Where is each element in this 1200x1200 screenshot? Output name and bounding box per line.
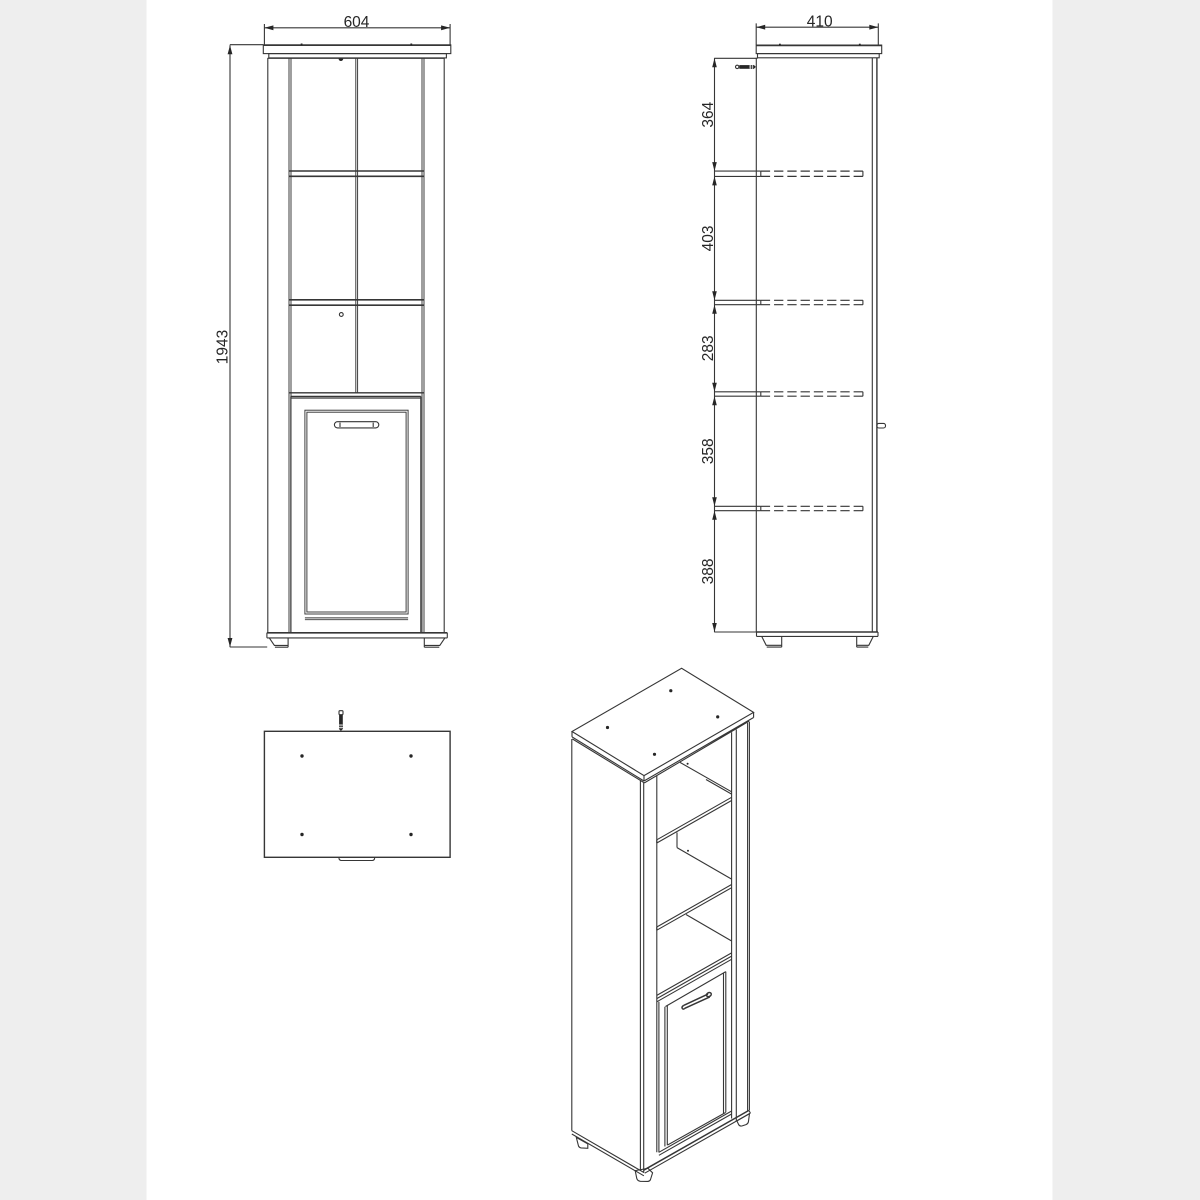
svg-text:1943: 1943 — [215, 330, 232, 364]
svg-text:388: 388 — [700, 558, 717, 584]
svg-text:358: 358 — [700, 438, 717, 464]
svg-text:364: 364 — [700, 101, 717, 127]
svg-text:283: 283 — [700, 335, 717, 361]
svg-text:410: 410 — [807, 14, 833, 31]
svg-text:403: 403 — [700, 225, 717, 251]
svg-text:604: 604 — [344, 14, 370, 31]
